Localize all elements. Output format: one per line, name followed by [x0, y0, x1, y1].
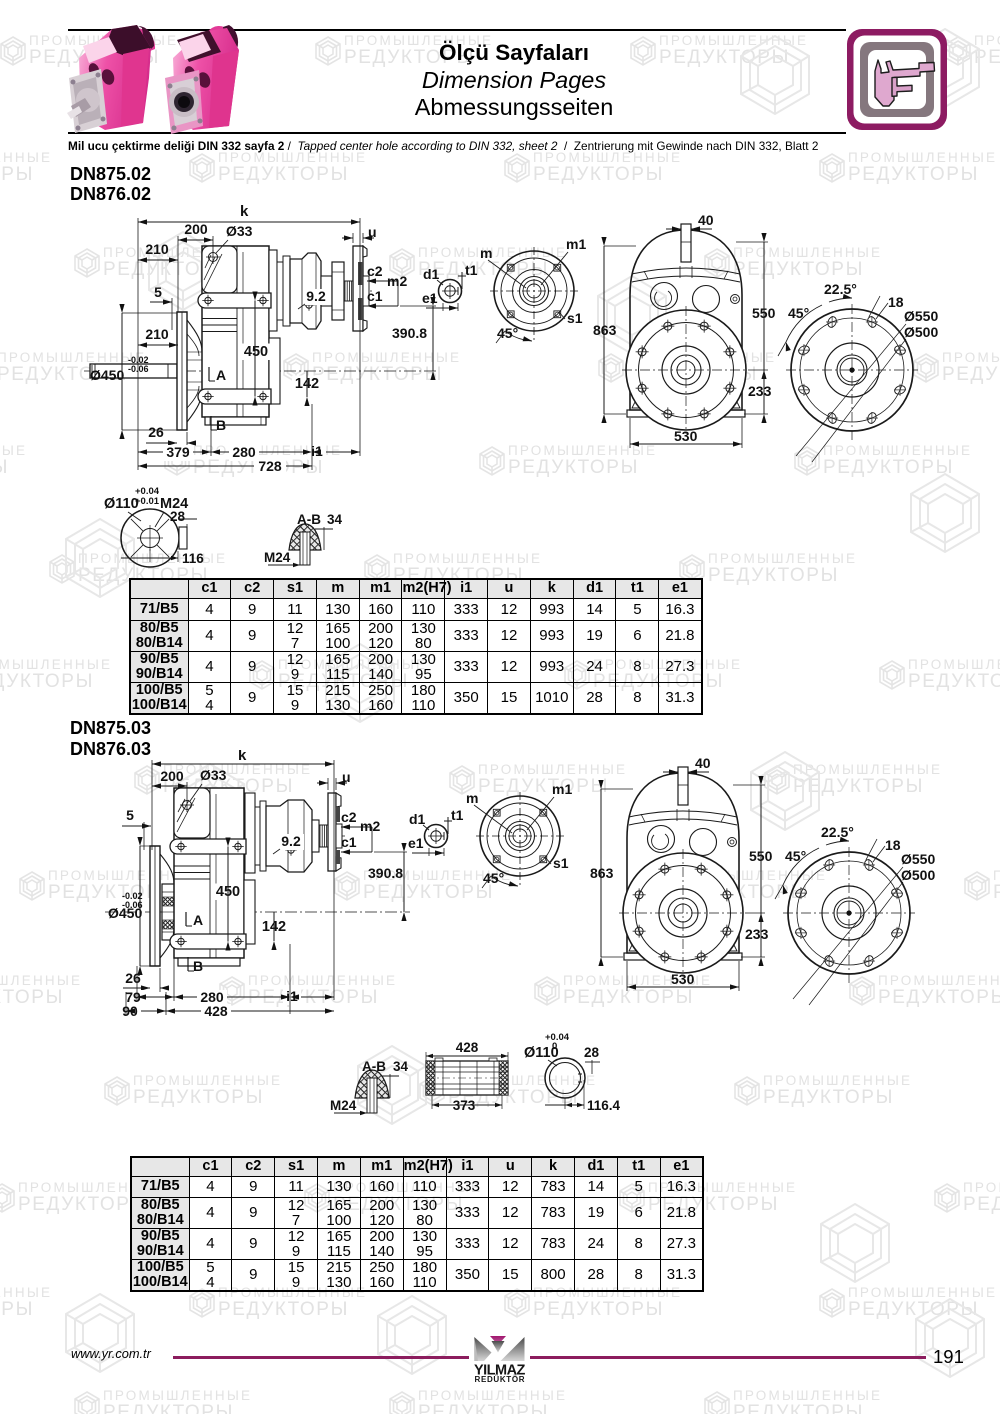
- svg-text:116: 116: [182, 551, 204, 566]
- svg-text:116.4: 116.4: [587, 1098, 621, 1113]
- svg-text:A-B: A-B: [297, 512, 321, 527]
- svg-text:m2: m2: [387, 273, 407, 289]
- svg-text:233: 233: [745, 926, 769, 942]
- svg-text:m2: m2: [360, 818, 380, 834]
- svg-text:210: 210: [145, 241, 169, 257]
- svg-text:m1: m1: [552, 781, 572, 797]
- svg-text:m: m: [480, 245, 492, 261]
- svg-text:Ø110: Ø110: [104, 496, 139, 512]
- svg-text:c2: c2: [341, 809, 357, 825]
- svg-text:200: 200: [160, 768, 184, 784]
- svg-text:Ø450: Ø450: [90, 367, 124, 383]
- svg-text:Ø500: Ø500: [901, 867, 935, 883]
- svg-text:28: 28: [170, 509, 186, 524]
- svg-text:22.5°: 22.5°: [824, 281, 857, 297]
- svg-text:c2: c2: [367, 263, 383, 279]
- svg-text:5: 5: [154, 284, 162, 300]
- svg-text:Ø110: Ø110: [524, 1045, 559, 1061]
- svg-text:45°: 45°: [785, 848, 806, 864]
- svg-text:-0.06: -0.06: [122, 900, 143, 910]
- svg-text:e1: e1: [422, 290, 438, 306]
- svg-text:40: 40: [695, 755, 711, 771]
- svg-text:26: 26: [148, 424, 164, 440]
- svg-text:+0.04: +0.04: [545, 1032, 570, 1043]
- svg-text:200: 200: [184, 221, 208, 237]
- svg-text:m1: m1: [566, 236, 586, 252]
- svg-text:379: 379: [166, 444, 190, 460]
- svg-text:22.5°: 22.5°: [821, 824, 854, 840]
- svg-text:9.2: 9.2: [281, 833, 301, 849]
- svg-text:B: B: [216, 417, 226, 433]
- svg-text:40: 40: [698, 212, 714, 228]
- svg-text:+0.01: +0.01: [135, 496, 160, 507]
- svg-text:A-B: A-B: [362, 1059, 386, 1074]
- svg-text:A: A: [193, 912, 203, 928]
- svg-text:m: m: [466, 790, 478, 806]
- svg-text:233: 233: [748, 383, 772, 399]
- svg-text:d1: d1: [423, 266, 440, 282]
- svg-text:28: 28: [584, 1045, 600, 1060]
- svg-text:34: 34: [327, 512, 343, 527]
- svg-text:9.2: 9.2: [306, 288, 326, 304]
- svg-text:728: 728: [258, 458, 282, 474]
- svg-text:210: 210: [145, 326, 169, 342]
- svg-text:280: 280: [232, 444, 256, 460]
- svg-text:34: 34: [393, 1059, 409, 1074]
- svg-text:26: 26: [125, 970, 141, 986]
- svg-text:c1: c1: [341, 834, 357, 850]
- svg-text:863: 863: [590, 865, 614, 881]
- svg-text:373: 373: [453, 1098, 476, 1113]
- svg-text:A: A: [216, 367, 226, 383]
- svg-text:Ø550: Ø550: [901, 851, 935, 867]
- svg-text:450: 450: [244, 344, 268, 360]
- svg-text:428: 428: [204, 1003, 228, 1019]
- svg-text:Ø550: Ø550: [904, 308, 938, 324]
- svg-text:390.8: 390.8: [368, 865, 403, 881]
- svg-text:c1: c1: [367, 288, 383, 304]
- svg-text:t1: t1: [465, 262, 478, 278]
- svg-text:18: 18: [888, 294, 904, 310]
- svg-text:Ø500: Ø500: [904, 324, 938, 340]
- svg-text:M24: M24: [264, 550, 291, 565]
- svg-text:45°: 45°: [788, 305, 809, 321]
- svg-text:e1: e1: [408, 835, 424, 851]
- svg-text:428: 428: [456, 1040, 479, 1055]
- svg-text:REDÜKTÖR: REDÜKTÖR: [475, 1375, 525, 1384]
- svg-text:-0.06: -0.06: [128, 364, 149, 374]
- svg-text:t1: t1: [451, 807, 464, 823]
- svg-text:18: 18: [885, 837, 901, 853]
- svg-text:Ø33: Ø33: [200, 767, 227, 783]
- svg-text:k: k: [240, 205, 249, 220]
- svg-text:530: 530: [674, 428, 698, 444]
- svg-text:s1: s1: [567, 310, 583, 326]
- svg-text:B: B: [193, 958, 203, 974]
- svg-text:863: 863: [593, 322, 617, 338]
- svg-text:s1: s1: [553, 855, 569, 871]
- svg-text:d1: d1: [409, 811, 426, 827]
- svg-text:k: k: [238, 750, 247, 764]
- svg-text:5: 5: [126, 807, 134, 823]
- svg-text:390.8: 390.8: [392, 325, 427, 341]
- svg-text:M24: M24: [330, 1098, 357, 1113]
- svg-text:Ø33: Ø33: [226, 223, 253, 239]
- svg-text:530: 530: [671, 971, 695, 987]
